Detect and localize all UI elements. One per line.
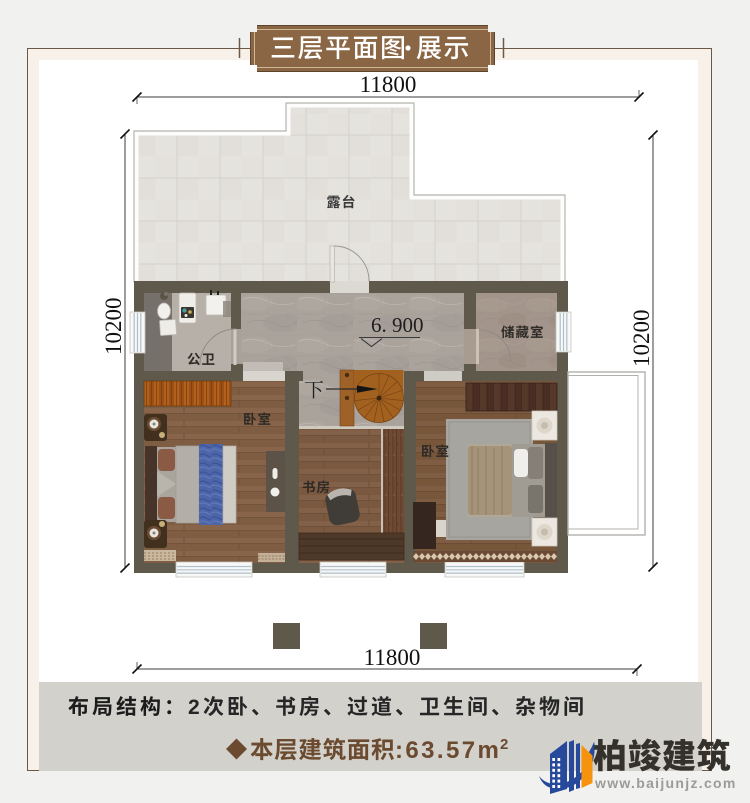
svg-text:10200: 10200 xyxy=(629,310,654,368)
svg-text:2: 2 xyxy=(188,696,200,719)
svg-text:6. 900: 6. 900 xyxy=(371,313,424,337)
svg-text:10200: 10200 xyxy=(101,298,126,356)
svg-text:www.baijunjz.com: www.baijunjz.com xyxy=(594,775,737,791)
svg-text::63.57m: :63.57m xyxy=(395,737,501,764)
svg-text:11800: 11800 xyxy=(364,645,421,670)
svg-text:11800: 11800 xyxy=(360,72,417,97)
svg-text:2: 2 xyxy=(500,736,508,753)
